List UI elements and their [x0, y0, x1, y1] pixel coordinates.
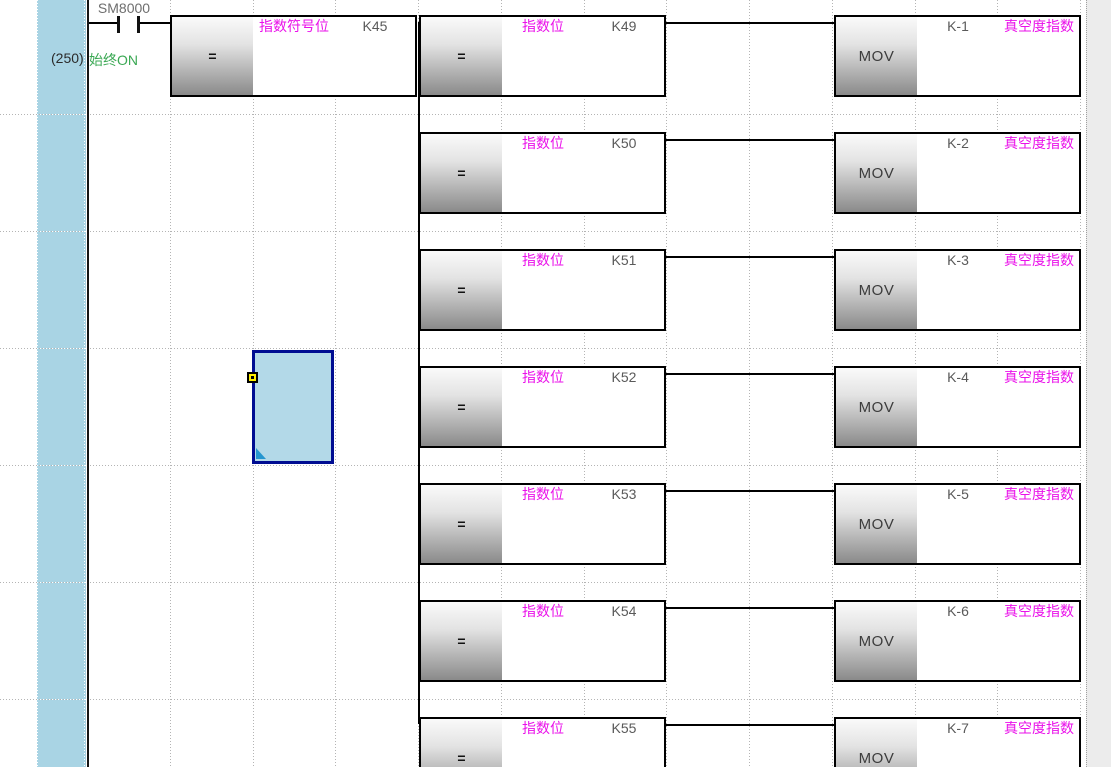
compare-device-comment: 指数位 [502, 720, 584, 737]
compare-instruction-cell: = [421, 134, 502, 212]
move-operand: K-6 [917, 603, 999, 620]
move-instruction-cell: MOV [836, 251, 917, 329]
compare-operand: K52 [584, 369, 664, 386]
compare-mnemonic: = [457, 48, 465, 64]
compare-operand: K51 [584, 252, 664, 269]
move-device-comment: 真空度指数 [999, 18, 1079, 35]
ladder-branch-row: = 指数位 K55 MOV K-7 真空度指数 [0, 717, 1111, 767]
move-block[interactable]: MOV K-2 真空度指数 [834, 132, 1081, 214]
compare-block[interactable]: = 指数位 K55 [419, 717, 666, 767]
move-instruction-cell: MOV [836, 17, 917, 95]
move-operand: K-7 [917, 720, 999, 737]
move-mnemonic: MOV [859, 516, 895, 533]
move-device-comment: 真空度指数 [999, 369, 1079, 386]
move-device-comment: 真空度指数 [999, 135, 1079, 152]
compare-block[interactable]: = 指数位 K50 [419, 132, 666, 214]
compare-block[interactable]: = 指数位 K53 [419, 483, 666, 565]
move-device-comment: 真空度指数 [999, 720, 1079, 737]
ladder-branch-row: = 指数位 K52 MOV K-4 真空度指数 [0, 366, 1111, 448]
move-instruction-cell: MOV [836, 134, 917, 212]
move-device-comment: 真空度指数 [999, 486, 1079, 503]
compare-instruction-cell: = [421, 485, 502, 563]
wire-horizontal [666, 256, 834, 258]
compare-mnemonic: = [457, 399, 465, 415]
ladder-branch-row: = 指数位 K51 MOV K-3 真空度指数 [0, 249, 1111, 331]
selection-corner-triangle-icon [256, 448, 266, 459]
move-instruction-cell: MOV [836, 719, 917, 767]
move-operand: K-5 [917, 486, 999, 503]
compare-block[interactable]: = 指数位 K54 [419, 600, 666, 682]
move-mnemonic: MOV [859, 282, 895, 299]
move-mnemonic: MOV [859, 633, 895, 650]
ladder-branch-row: = 指数位 K53 MOV K-5 真空度指数 [0, 483, 1111, 565]
compare-block[interactable]: = 指数位 K52 [419, 366, 666, 448]
compare-operand: K49 [584, 18, 664, 35]
move-block[interactable]: MOV K-1 真空度指数 [834, 15, 1081, 97]
move-block[interactable]: MOV K-4 真空度指数 [834, 366, 1081, 448]
wire-horizontal [666, 607, 834, 609]
compare-device-comment: 指数位 [502, 135, 584, 152]
compare-instruction-cell: = [421, 602, 502, 680]
move-operand: K-2 [917, 135, 999, 152]
compare-instruction-cell: = [421, 251, 502, 329]
move-device-comment: 真空度指数 [999, 603, 1079, 620]
compare-mnemonic: = [457, 282, 465, 298]
compare-block[interactable]: = 指数位 K49 [419, 15, 666, 97]
compare-device-comment: 指数位 [502, 486, 584, 503]
compare-instruction-cell: = [421, 368, 502, 446]
move-operand: K-4 [917, 369, 999, 386]
ladder-branch-row: = 指数位 K50 MOV K-2 真空度指数 [0, 132, 1111, 214]
compare-mnemonic: = [457, 516, 465, 532]
move-instruction-cell: MOV [836, 485, 917, 563]
compare-operand: K55 [584, 720, 664, 737]
move-block[interactable]: MOV K-5 真空度指数 [834, 483, 1081, 565]
wire-horizontal [666, 22, 834, 24]
move-instruction-cell: MOV [836, 602, 917, 680]
move-instruction-cell: MOV [836, 368, 917, 446]
move-mnemonic: MOV [859, 165, 895, 182]
move-mnemonic: MOV [859, 48, 895, 65]
compare-instruction-cell: = [421, 17, 502, 95]
wire-horizontal [666, 373, 834, 375]
compare-device-comment: 指数位 [502, 603, 584, 620]
move-device-comment: 真空度指数 [999, 252, 1079, 269]
branch-rows-layer: = 指数位 K49 MOV K-1 真空度指数 = 指数位 K50 MOV K-… [0, 0, 1111, 767]
wire-horizontal [666, 490, 834, 492]
move-mnemonic: MOV [859, 750, 895, 767]
compare-instruction-cell: = [421, 719, 502, 767]
ladder-editor-canvas: SM8000 (250) 始终ON = 指数符号位 K45 = 指数位 K49 … [0, 0, 1111, 767]
move-block[interactable]: MOV K-6 真空度指数 [834, 600, 1081, 682]
move-block[interactable]: MOV K-7 真空度指数 [834, 717, 1081, 767]
compare-mnemonic: = [457, 750, 465, 766]
move-operand: K-3 [917, 252, 999, 269]
ladder-branch-row: = 指数位 K49 MOV K-1 真空度指数 [0, 15, 1111, 97]
move-mnemonic: MOV [859, 399, 895, 416]
compare-device-comment: 指数位 [502, 252, 584, 269]
selection-anchor-handle-icon[interactable] [247, 372, 258, 383]
compare-operand: K50 [584, 135, 664, 152]
compare-device-comment: 指数位 [502, 18, 584, 35]
ladder-branch-row: = 指数位 K54 MOV K-6 真空度指数 [0, 600, 1111, 682]
compare-operand: K54 [584, 603, 664, 620]
compare-operand: K53 [584, 486, 664, 503]
compare-mnemonic: = [457, 633, 465, 649]
wire-horizontal [666, 139, 834, 141]
move-operand: K-1 [917, 18, 999, 35]
wire-horizontal [666, 724, 834, 726]
compare-device-comment: 指数位 [502, 369, 584, 386]
selection-cursor[interactable] [252, 350, 334, 464]
move-block[interactable]: MOV K-3 真空度指数 [834, 249, 1081, 331]
compare-mnemonic: = [457, 165, 465, 181]
compare-block[interactable]: = 指数位 K51 [419, 249, 666, 331]
